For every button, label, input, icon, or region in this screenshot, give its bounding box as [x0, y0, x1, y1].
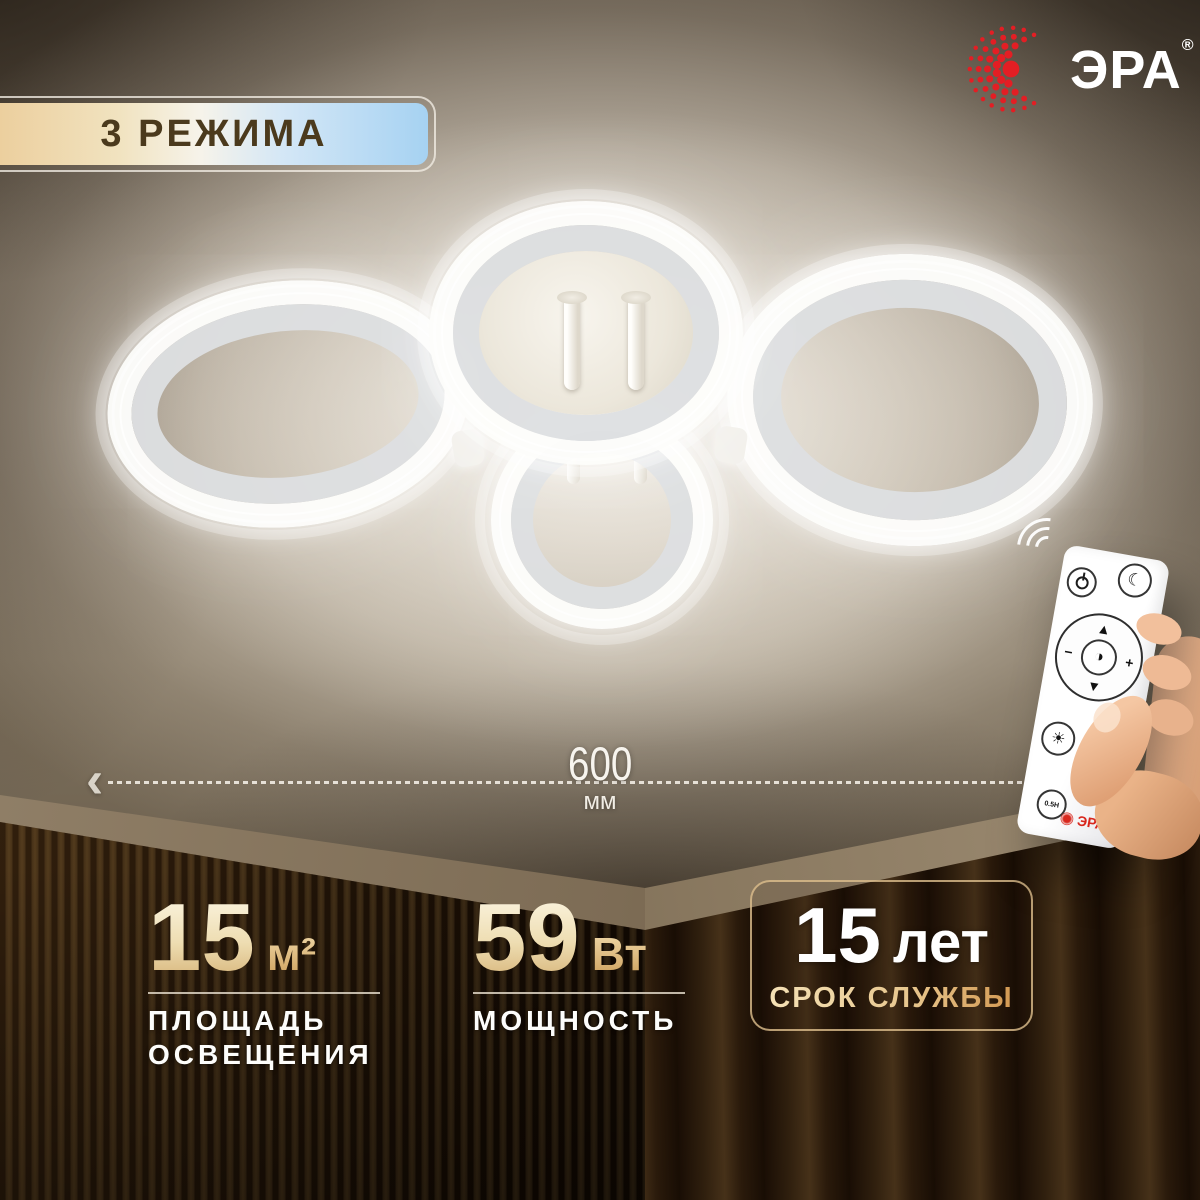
plus-icon: +	[1124, 654, 1135, 671]
arrow-down-icon: ▼	[1086, 677, 1102, 695]
brand-name: ЭРА®	[1070, 37, 1194, 101]
modes-badge-frame: 3 РЕЖИМА	[0, 96, 436, 172]
brand-sun-icon	[962, 20, 1060, 118]
led-ring-right	[720, 245, 1101, 556]
brightness-icon: ☀	[1049, 728, 1067, 750]
minus-icon: −	[1063, 643, 1074, 660]
led-ring-top	[429, 201, 743, 465]
mode-icon: ◑	[1093, 648, 1106, 667]
registered-mark: ®	[1182, 37, 1195, 54]
remote-power-button	[1064, 565, 1099, 600]
remote-brightness-button: ☀	[1039, 719, 1078, 758]
area-value: 15	[148, 894, 255, 982]
ring-inner-band	[453, 225, 719, 441]
power-value: 59	[473, 894, 580, 982]
remote-night-mode-button: ☾	[1115, 561, 1154, 600]
spec-lifetime: 15лет СРОК СЛУЖБЫ	[750, 880, 1033, 1031]
divider	[473, 992, 685, 994]
lamp-mount-rod	[564, 295, 580, 390]
product-banner: 3 РЕЖИМА ЭРА® ‹ › 600 мм 15 м² ПЛОЩАДЬ О…	[0, 0, 1200, 1200]
mini-sun-icon	[1060, 811, 1075, 826]
spec-power: 59 Вт МОЩНОСТЬ	[473, 894, 685, 1038]
lamp-canopy	[479, 251, 693, 415]
lamp-clip-right	[713, 425, 748, 465]
arrow-up-icon: ▲	[1096, 620, 1112, 638]
moon-icon: ☾	[1126, 569, 1144, 591]
power-icon	[1074, 575, 1089, 590]
lamp-mount-rod	[628, 295, 644, 390]
power-label: МОЩНОСТЬ	[473, 1004, 685, 1038]
remote-dpad: ▲ ▼ + − ◑	[1048, 606, 1150, 708]
brand-logo: ЭРА®	[962, 20, 1194, 118]
spec-area: 15 м² ПЛОЩАДЬ ОСВЕЩЕНИЯ	[148, 894, 380, 1073]
lifetime-value: 15	[794, 891, 881, 979]
area-unit: м²	[267, 933, 316, 975]
area-label: ПЛОЩАДЬ ОСВЕЩЕНИЯ	[148, 1004, 380, 1072]
lifetime-unit: лет	[893, 910, 989, 975]
divider	[148, 992, 380, 994]
lifetime-label: СРОК СЛУЖБЫ	[752, 982, 1031, 1015]
power-unit: Вт	[592, 933, 647, 975]
remote-mode-button: ◑	[1078, 637, 1120, 679]
modes-badge: 3 РЕЖИМА	[0, 103, 428, 165]
dimension-value: 600	[0, 736, 1200, 791]
